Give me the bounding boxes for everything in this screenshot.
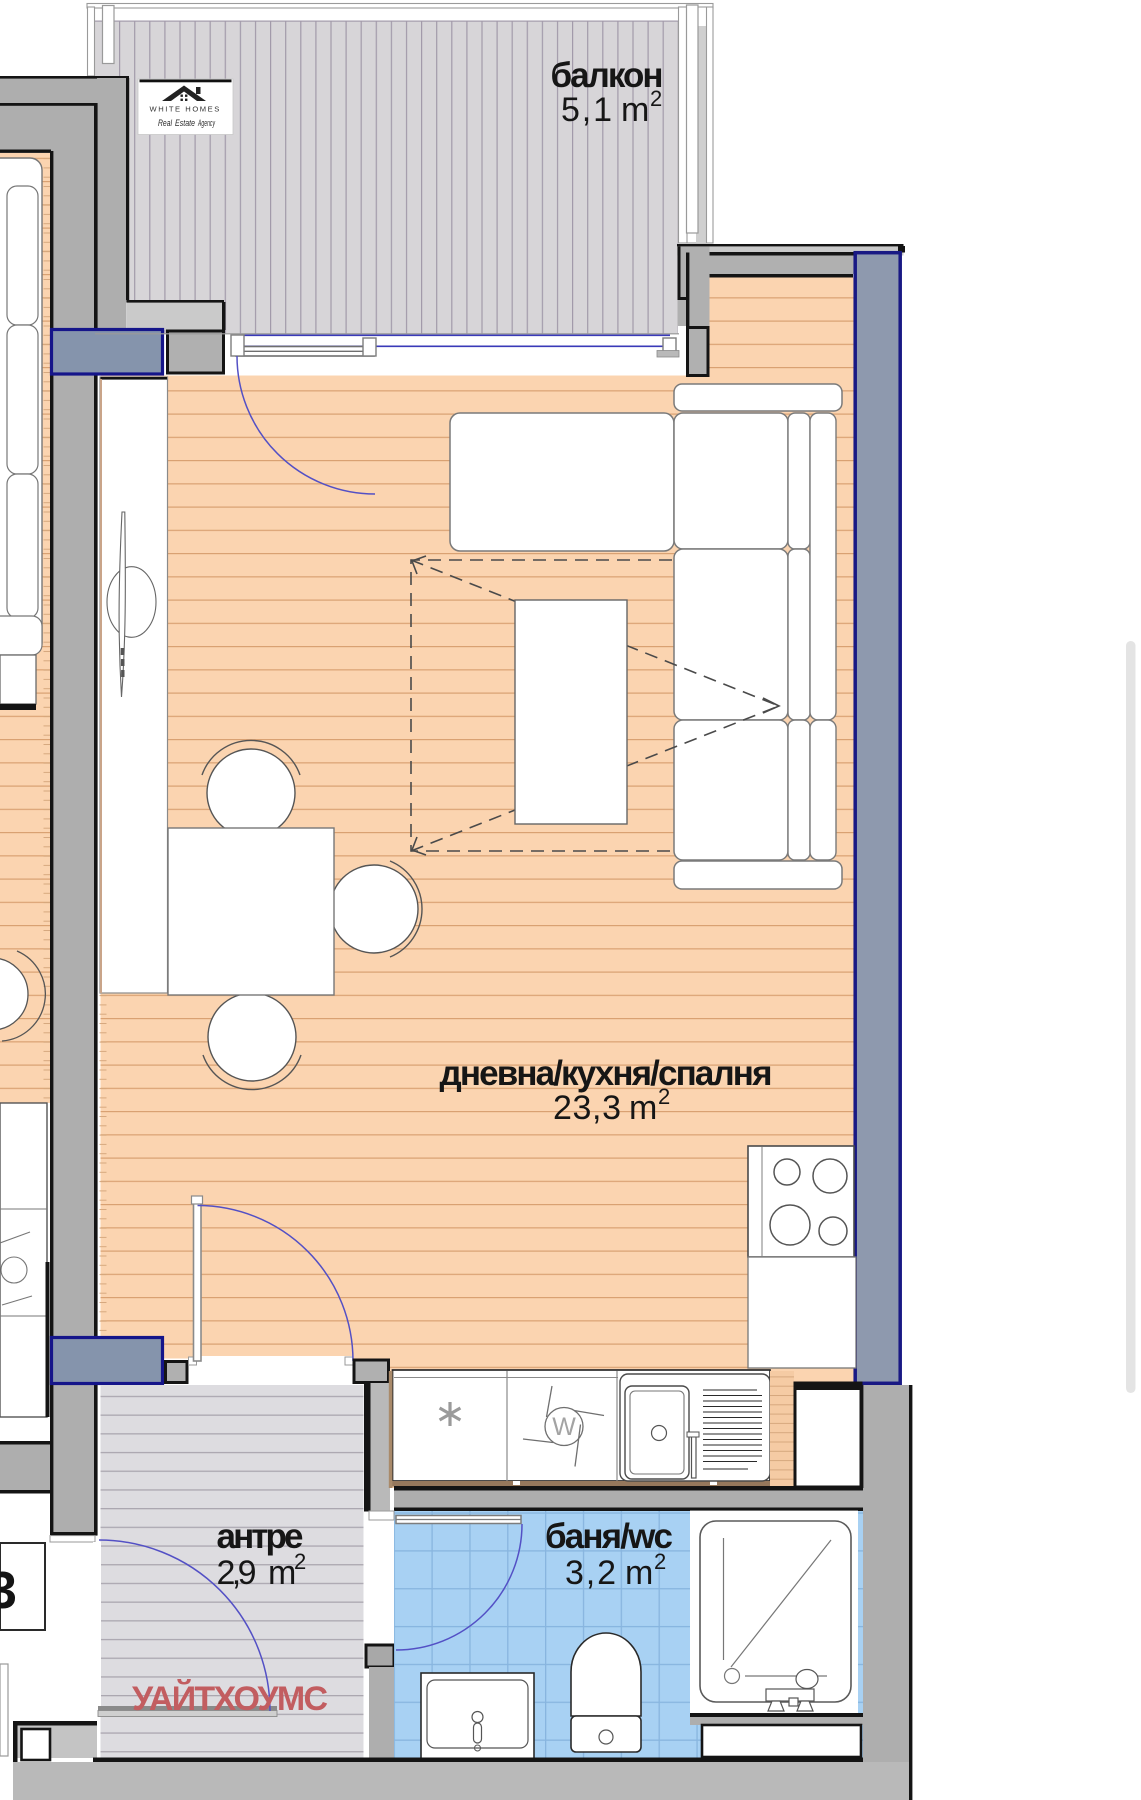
- svg-text:5,1: 5,1: [561, 91, 612, 129]
- svg-text:УАЙТХОУМС: УАЙТХОУМС: [132, 1679, 328, 1718]
- svg-text:23,3: 23,3: [553, 1089, 621, 1127]
- svg-text:Real: Real: [158, 118, 173, 128]
- svg-text:2: 2: [654, 1549, 666, 1574]
- svg-text:Estate: Estate: [175, 118, 195, 128]
- svg-text:Agency: Agency: [197, 118, 215, 128]
- svg-text:3,2: 3,2: [565, 1554, 616, 1592]
- svg-text:2: 2: [294, 1549, 306, 1574]
- svg-text:антре: антре: [217, 1517, 304, 1556]
- svg-text:m: m: [629, 1089, 657, 1127]
- svg-text:дневна/кухня/спалня: дневна/кухня/спалня: [440, 1054, 773, 1093]
- svg-text:2: 2: [658, 1084, 670, 1109]
- svg-text:m: m: [621, 91, 649, 129]
- svg-text:W: W: [552, 1413, 576, 1441]
- svg-text:2,9: 2,9: [217, 1554, 257, 1592]
- svg-text:балкон: балкон: [551, 56, 664, 95]
- svg-text:2: 2: [650, 86, 662, 111]
- svg-text:3: 3: [0, 1562, 17, 1620]
- svg-text:WHITE HOMES: WHITE HOMES: [150, 105, 222, 114]
- svg-text:m: m: [268, 1554, 296, 1592]
- svg-text:m: m: [625, 1554, 653, 1592]
